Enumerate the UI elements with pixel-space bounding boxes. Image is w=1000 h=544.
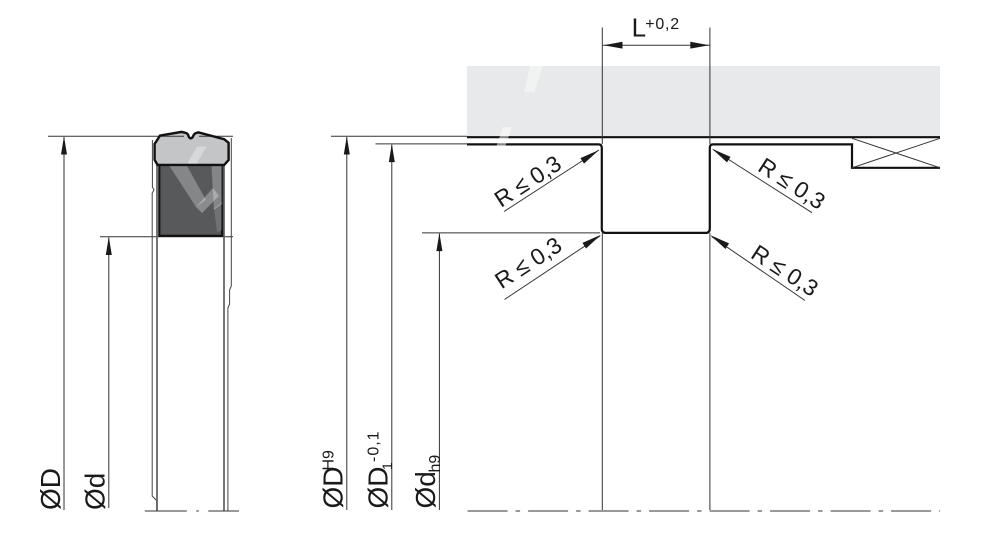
svg-text:H9: H9 [320, 450, 337, 471]
svg-text:-0,1: -0,1 [365, 430, 382, 462]
svg-text:Ød: Ød [410, 471, 441, 508]
svg-text:ØD: ØD [317, 467, 348, 509]
svg-text:ØD: ØD [362, 467, 393, 509]
svg-text:L: L [632, 12, 646, 42]
svg-text:+0,2: +0,2 [645, 16, 680, 33]
svg-text:h9: h9 [427, 455, 444, 473]
svg-text:ØD: ØD [35, 468, 66, 510]
svg-text:1: 1 [379, 462, 395, 470]
svg-text:Ød: Ød [80, 473, 111, 510]
